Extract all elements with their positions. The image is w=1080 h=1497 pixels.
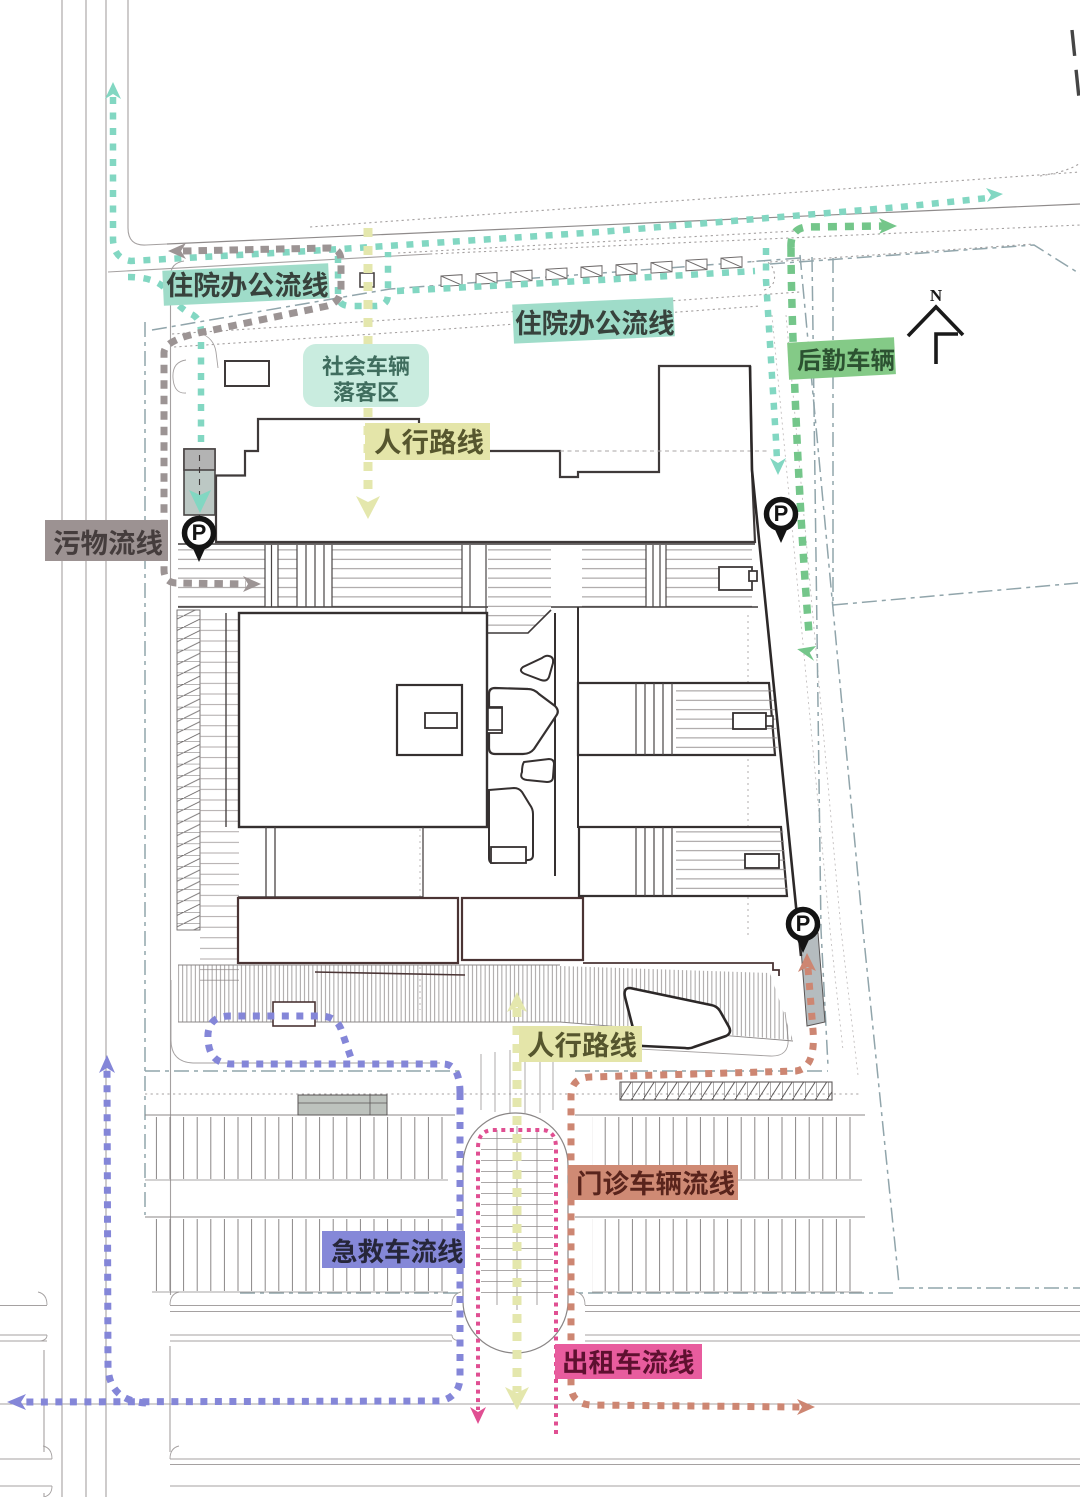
- svg-text:P: P: [192, 520, 207, 545]
- svg-text:P: P: [774, 501, 789, 526]
- svg-text:N: N: [930, 286, 943, 305]
- svg-text:P: P: [796, 911, 811, 936]
